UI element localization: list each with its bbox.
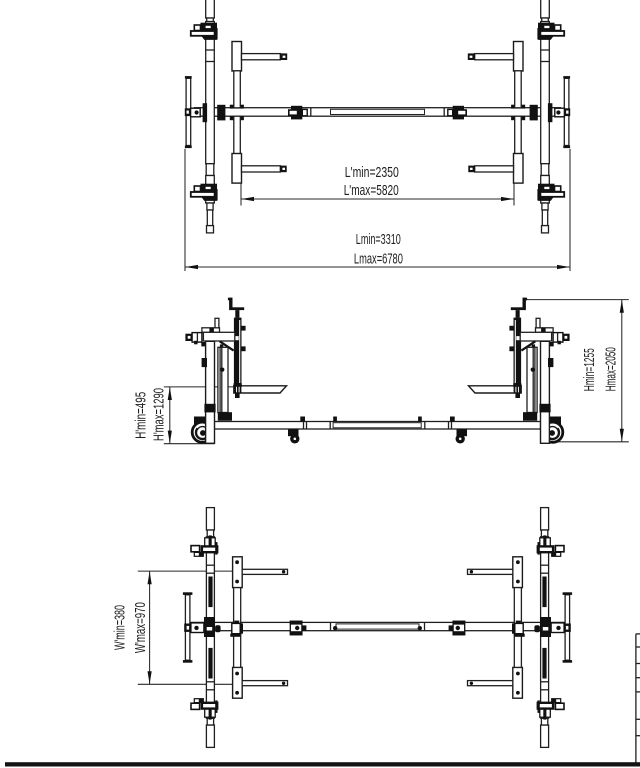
- svg-text:Lmax=6780: Lmax=6780: [354, 251, 403, 267]
- svg-text:L'max=5820: L'max=5820: [344, 183, 399, 199]
- svg-text:Lmin=3310: Lmin=3310: [356, 232, 401, 248]
- svg-text:Hmin=1255: Hmin=1255: [582, 348, 598, 391]
- svg-text:H'max=1290: H'max=1290: [151, 388, 167, 441]
- svg-text:Hmax=2050: Hmax=2050: [604, 347, 620, 391]
- svg-text:L'min=2350: L'min=2350: [345, 165, 399, 181]
- svg-text:W'min=380: W'min=380: [112, 605, 128, 650]
- svg-text:W'max=970: W'max=970: [133, 602, 149, 653]
- svg-text:H'min=495: H'min=495: [133, 392, 149, 439]
